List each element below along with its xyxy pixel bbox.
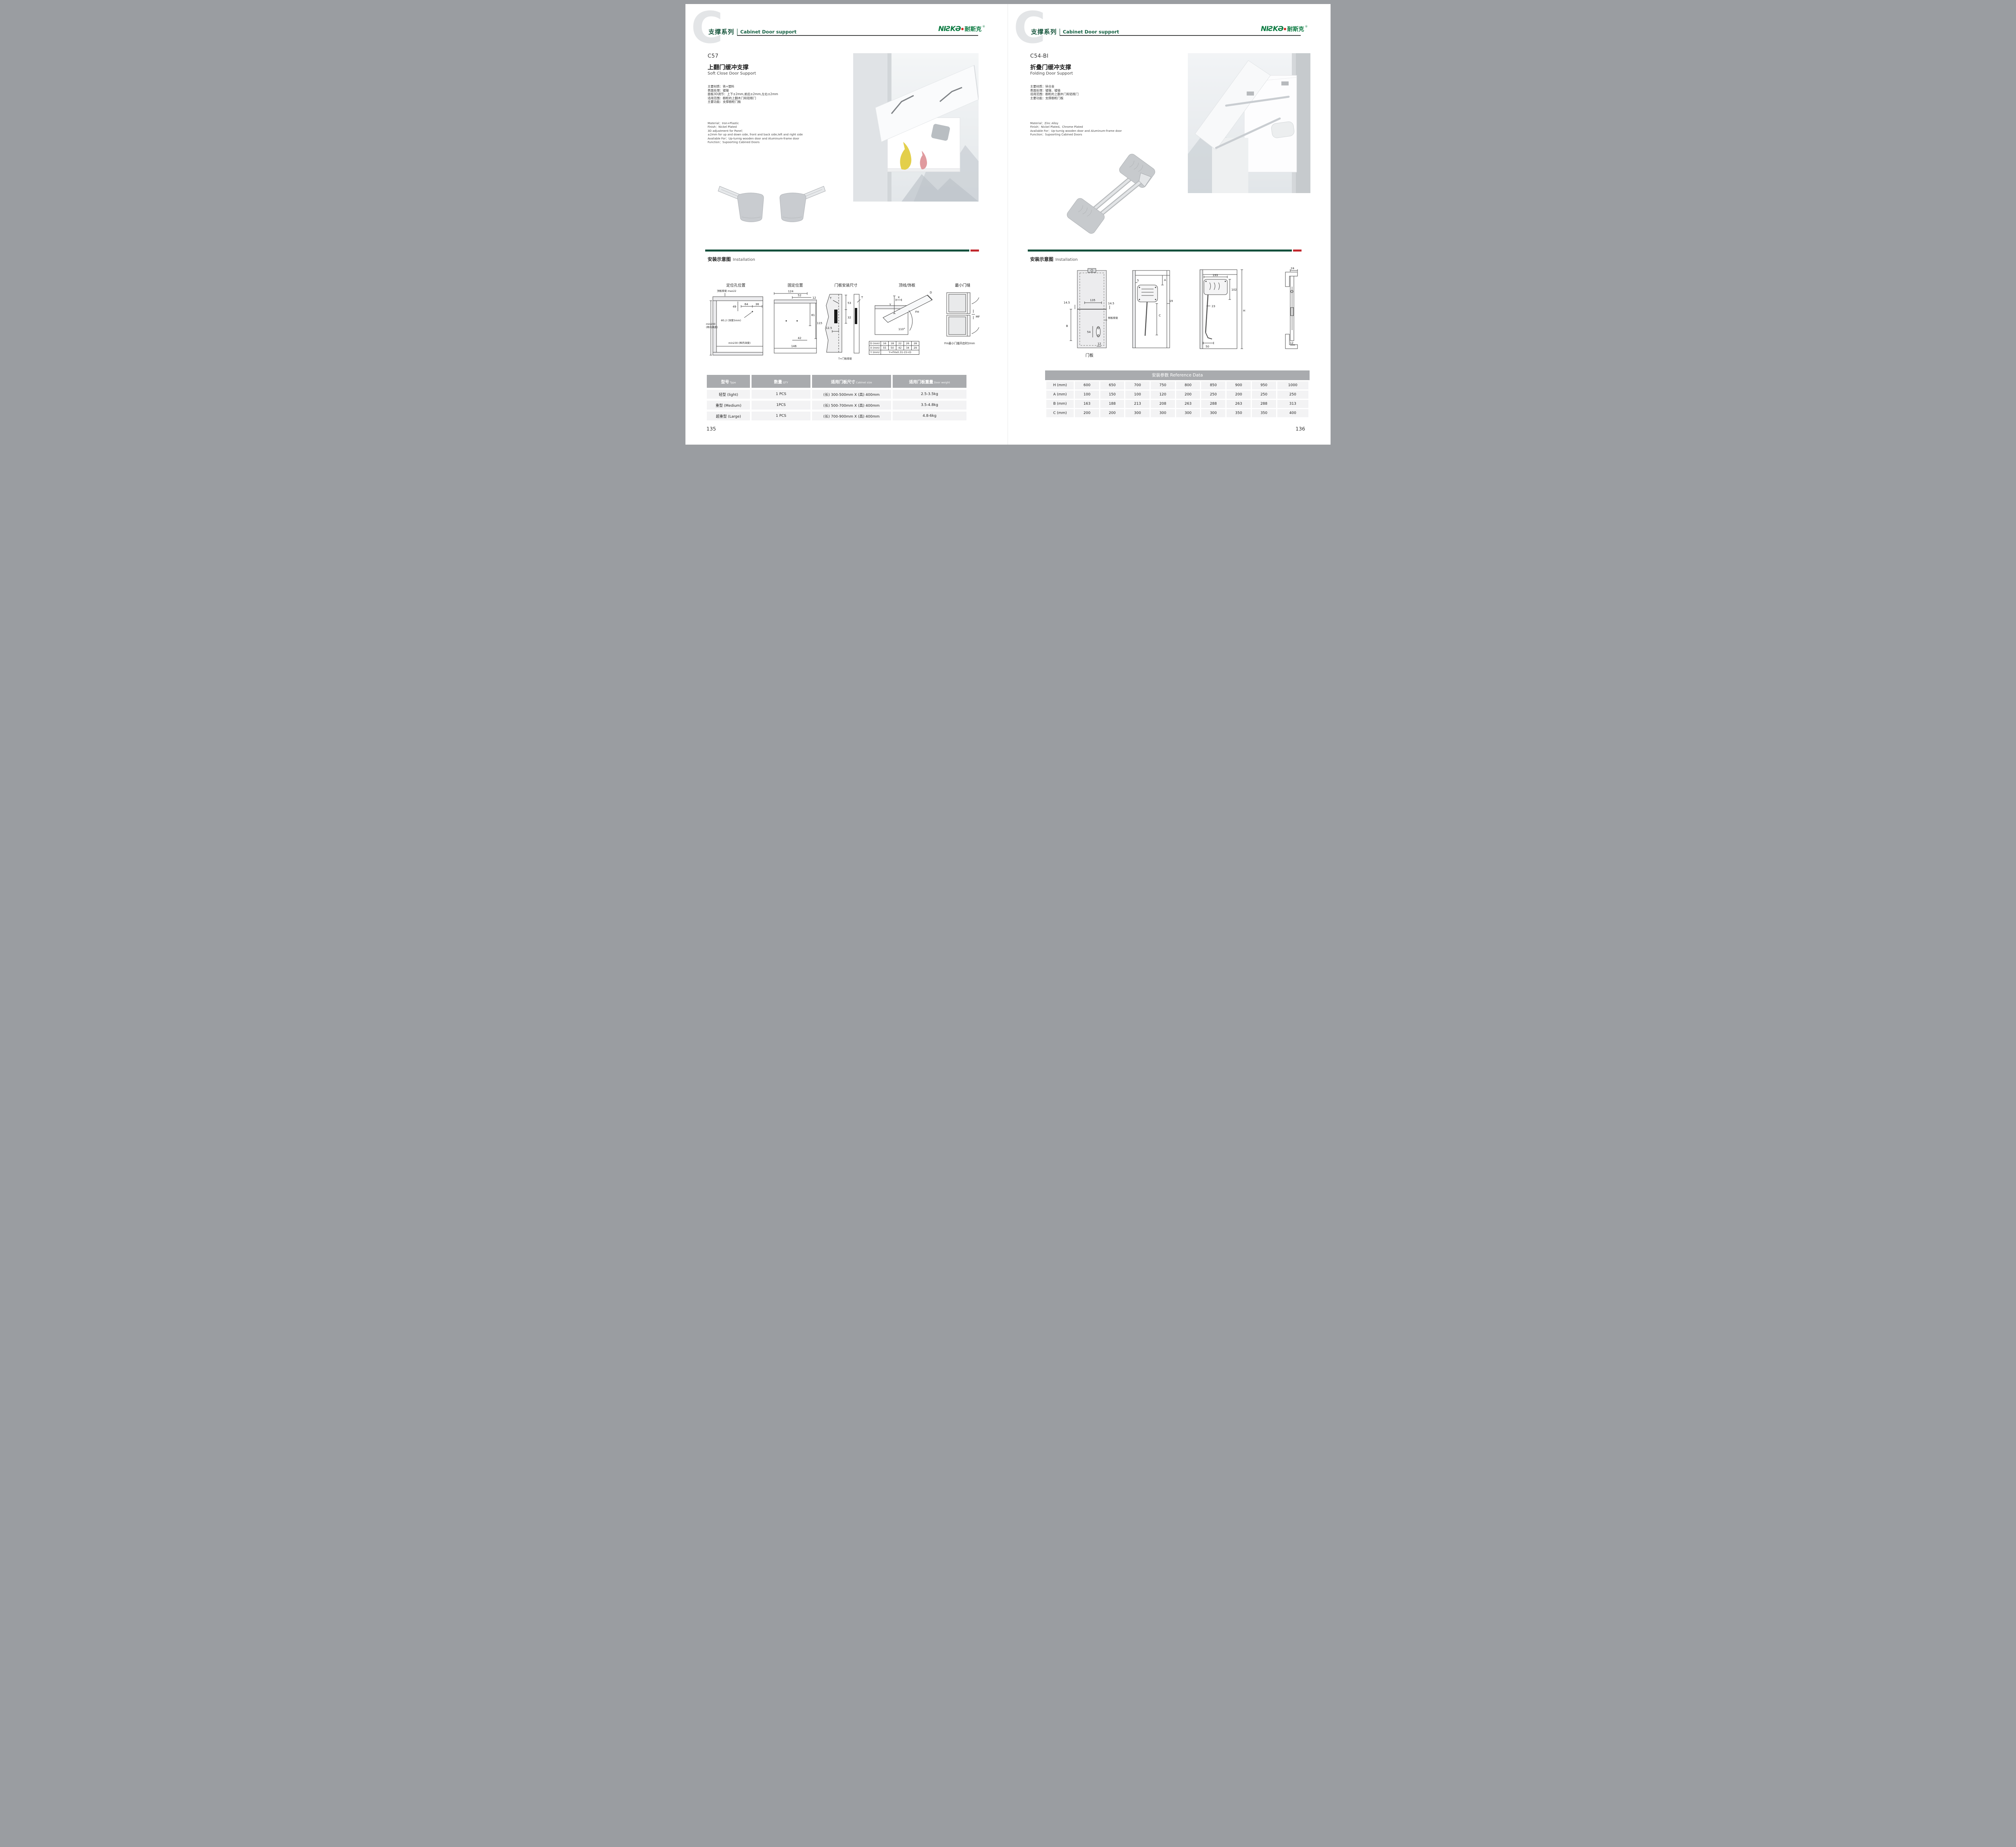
header-rule <box>1060 35 1301 36</box>
brand-logo-dot-icon <box>1284 28 1286 30</box>
table-cell: 700 <box>1125 381 1150 389</box>
table-cell: 163 <box>1075 400 1099 408</box>
table-cell: 150 <box>1100 391 1125 399</box>
product-title-cn: 上翻门缓冲支撑 <box>708 63 749 71</box>
table-cell: 18 <box>889 341 896 346</box>
dim-36: 36 <box>756 303 759 306</box>
spec-line: Material：Zinc Alloy <box>1030 122 1122 125</box>
brand-logo-text: NIƧKƏ <box>1261 25 1283 33</box>
dim-t-note: T=门板厚度 <box>838 357 852 360</box>
dim-23: 23 <box>1212 305 1215 308</box>
table-cell: 400 <box>1277 409 1309 417</box>
diagram-door-panel-drawing: 135 14.5 14.5 B 54 12 侧板厚度 门板 <box>1063 267 1122 359</box>
table-cell: 200 <box>1075 409 1099 417</box>
table-cell: 100 <box>1075 391 1099 399</box>
series-header: 支撑系列 Cabinet Door support <box>1031 27 1119 36</box>
series-title-cn: 支撑系列 <box>1031 27 1057 36</box>
table-cell: 34 <box>904 346 912 350</box>
dim-81: 81 <box>811 314 815 317</box>
table-cell: 263 <box>1227 400 1251 408</box>
fm-gap-note: Fm最小门缝开启时2mm <box>932 341 987 345</box>
spec-line: Function：Supoorting Cabined Doors <box>1030 133 1122 137</box>
table-cell: (长) 700-900mm X (高) 400mm <box>812 412 891 420</box>
spec-line: 主要材质：铁+塑料 <box>708 85 778 89</box>
page-number: 136 <box>1288 426 1305 432</box>
diagram-label: 最小门缝 <box>943 282 982 288</box>
hardware-photo <box>716 180 827 229</box>
table-cell: 2.5-3.5kg <box>893 390 966 399</box>
page-135: C 支撑系列 Cabinet Door support NIƧKƏ 耐斯克 ® … <box>685 4 1008 445</box>
table-cell: 250 <box>1201 391 1225 399</box>
table-cell: 重型 (Medium) <box>707 401 750 410</box>
table-cell: (长) 500-700mm X (高) 400mm <box>812 401 891 410</box>
product-code: C54-BI <box>1030 53 1049 59</box>
divider-green-bar <box>705 250 969 252</box>
table-header: 适用门板尺寸Cabinet size <box>812 375 891 388</box>
table-row: C (mm) 200 200 300 300 300 300 350 350 4… <box>1046 409 1308 417</box>
dim-x: X <box>898 296 900 299</box>
diagram-door-panel: 135 14.5 14.5 B 54 12 侧板厚度 门板 <box>1063 267 1122 361</box>
dim-min-height-1: min200 <box>706 323 716 326</box>
dim-min-depth: min230 (柜内深度) <box>728 341 750 345</box>
dim-49: 49 <box>733 305 736 308</box>
dim-mf: MF <box>976 315 980 318</box>
header-rule <box>737 35 978 36</box>
dim-min-height-2: (柜内高度) <box>706 326 718 329</box>
series-header: 支撑系列 Cabinet Door support <box>708 27 796 36</box>
spec-line: Finish：Nickel Plated、Chrome Plated <box>1030 125 1122 129</box>
table-cell: 16 <box>881 341 889 346</box>
table-cell: 850 <box>1201 381 1225 389</box>
dim-14-5-left: 14.5 <box>1064 301 1070 304</box>
table-cell: 100 <box>1125 391 1150 399</box>
dim-102: 102 <box>1231 288 1237 291</box>
spec-line: Finish：Nickel Plated <box>708 125 803 129</box>
diagram-profile-drawing: 24 12 <box>1279 267 1304 354</box>
dim-y: Y <box>889 303 891 306</box>
table-row: B (mm) 163 188 213 208 263 288 263 288 3… <box>1046 400 1308 408</box>
dim-42: 42 <box>798 337 802 340</box>
section-divider <box>705 250 979 252</box>
series-divider <box>1060 29 1060 35</box>
dim-52: 52 <box>798 294 802 297</box>
brand-logo-dot-icon <box>961 28 964 30</box>
spec-line: 表面处理：镀镍 <box>708 89 778 93</box>
table-cell: 300 <box>1151 409 1175 417</box>
diagram-cabinet-arm: 193 102 23 50 H <box>1196 267 1246 356</box>
product-title-en: Soft Close Door Support <box>708 71 756 76</box>
installation-heading-cn: 安装示意图 <box>708 256 731 262</box>
table-cell: 213 <box>1125 400 1150 408</box>
reference-table: 安装参数 Reference Data H (mm) 600 650 700 7… <box>1045 370 1310 418</box>
diagram-positioning-holes: 定位孔位置 顶板厚度 max22 49 64 36 Φ5.2 (深度5mm) <box>706 282 766 361</box>
table-cell: 4.8-6kg <box>893 412 966 420</box>
table-cell: 263 <box>1176 400 1200 408</box>
hardware-illustration <box>1058 152 1160 237</box>
table-cell: H (mm) <box>1046 381 1074 389</box>
divider-red-accent <box>971 250 979 252</box>
diagram-profile: 24 12 <box>1279 267 1304 356</box>
spec-line: Available For：Up-turnig wooden door and … <box>708 137 803 141</box>
dim-124: 124 <box>788 290 793 293</box>
table-cell: 188 <box>1100 400 1125 408</box>
specs-en: Material：Iron+Plastic Finish：Nickel Plat… <box>708 122 803 144</box>
diagram-door-mounting-drawing: T 53 32 12.5 T T=门板厚度 <box>822 289 870 361</box>
table-cell: 1 PCS <box>752 390 810 399</box>
reference-table-title: 安装参数 Reference Data <box>1045 370 1310 380</box>
installation-heading: 安装示意图Installation <box>1030 255 1078 262</box>
product-code: C57 <box>708 53 719 59</box>
registered-mark: ® <box>982 25 985 28</box>
dim-146: 146 <box>791 345 797 348</box>
dim-32: 32 <box>848 316 851 319</box>
table-cell: 600 <box>1075 381 1099 389</box>
series-title-en: Cabinet Door support <box>1063 29 1119 35</box>
spec-line: 表面处理：镀镍、镀铬 <box>1030 89 1079 93</box>
table-cell: 50 <box>889 346 896 350</box>
table-cell: 350 <box>1252 409 1276 417</box>
table-cell: 250 <box>1252 391 1276 399</box>
dim-12-5: 12.5 <box>826 327 832 330</box>
table-cell: D (mm) <box>869 341 881 346</box>
cabinet-photo <box>853 53 979 202</box>
dim-hole: Φ5.2 (深度5mm) <box>721 319 741 322</box>
table-row: Y (mm) Y=FHx0.31-15+D <box>869 350 919 355</box>
series-title-cn: 支撑系列 <box>708 27 734 36</box>
brand-logo-text: NIƧKƏ <box>938 25 960 33</box>
brand-logo: NIƧKƏ 耐斯克 ® <box>938 25 985 33</box>
specs-cn: 主要材质：锌合金 表面处理：镀镍、镀铬 适用范围：橱柜的上翻木门和铝框门 主要功… <box>1030 85 1079 100</box>
hardware-photo <box>1058 152 1160 237</box>
dim-t-right: T <box>861 296 863 299</box>
table-row: H (mm) 600 650 700 750 800 850 900 950 1… <box>1046 381 1308 389</box>
table-cell: A (mm) <box>1046 391 1074 399</box>
table-cell: 3.5-4.8kg <box>893 401 966 410</box>
diagram-label: 固定位置 <box>768 282 823 288</box>
table-header: 数量QTY <box>752 375 810 388</box>
diagram-cabinet-arm-drawing: 193 102 23 50 H <box>1196 267 1246 354</box>
dim-64: 64 <box>745 303 748 306</box>
dim-19: 19 <box>1169 300 1173 303</box>
dim-193: 193 <box>1212 274 1218 277</box>
table-cell: 350 <box>1227 409 1251 417</box>
brand-logo-cn: 耐斯克 <box>1287 25 1304 33</box>
dim-12: 12 <box>1098 342 1101 345</box>
spec-line: 3D adjustment for Panel： <box>708 129 803 133</box>
diagram-fixing-position-drawing: 124 52 12 81 115 42 146 <box>768 289 823 359</box>
installation-heading-en: Installation <box>733 258 755 262</box>
dim-c: C <box>1159 314 1161 317</box>
table-cell: 200 <box>1227 391 1251 399</box>
spec-line: Function：Supoorting Cabined Doors <box>708 141 803 144</box>
dim-54: 54 <box>1087 331 1091 334</box>
table-row: X (mm) 55 50 42 34 29 <box>869 346 919 350</box>
table-cell: 55 <box>881 346 889 350</box>
table-row: D (mm) 16 18 22 26 28 <box>869 341 919 346</box>
dim-53: 53 <box>848 302 851 305</box>
spec-line: 适用范围：橱柜的上翻木门和铝框门 <box>1030 92 1079 96</box>
diagram-cabinet-mechanism-drawing: 5 A C 19 <box>1127 267 1175 354</box>
table-cell: 29 <box>912 346 919 350</box>
table-cell: 1 PCS <box>752 412 810 420</box>
section-divider <box>1028 250 1302 252</box>
diagram-min-gap-drawing: MF <box>943 289 982 341</box>
dim-top-thickness: 顶板厚度 max22 <box>717 289 736 293</box>
cabinet-photo <box>1188 53 1310 193</box>
product-title-cn: 折叠门缓冲支撑 <box>1030 63 1071 71</box>
table-cell: 800 <box>1176 381 1200 389</box>
table-cell: 1000 <box>1277 381 1309 389</box>
reference-table-grid: H (mm) 600 650 700 750 800 850 900 950 1… <box>1045 380 1310 418</box>
brand-logo-cn: 耐斯克 <box>964 25 981 33</box>
spec-line: ±2mm for up and down side, front and bac… <box>708 133 803 137</box>
series-divider <box>737 29 737 35</box>
dim-angle: 110° <box>898 328 905 331</box>
table-cell: Y (mm) <box>869 350 881 355</box>
registered-mark: ® <box>1305 25 1308 28</box>
spec-line: 面板3D调节：上下±2mm,前后±2mm,左右±2mm <box>708 92 778 96</box>
dim-135: 135 <box>1090 299 1095 302</box>
spec-line: 主要功能：支撑橱柜门板 <box>708 100 778 104</box>
brand-logo: NIƧKƏ 耐斯克 ® <box>1261 25 1308 33</box>
table-cell: 650 <box>1100 381 1125 389</box>
table-cell: 300 <box>1125 409 1150 417</box>
installation-heading-en: Installation <box>1056 258 1078 262</box>
table-cell: 22 <box>896 341 904 346</box>
cabinet-photo-illustration <box>1188 53 1310 193</box>
diagram-label: 顶线/饰板 <box>872 282 942 288</box>
dim-50: 50 <box>1206 345 1209 348</box>
diagram-fixing-position: 固定位置 124 52 12 81 115 42 <box>768 282 823 361</box>
dxy-table: D (mm) 16 18 22 26 28 X (mm) 55 50 42 34… <box>869 341 919 355</box>
series-title-en: Cabinet Door support <box>740 29 796 35</box>
table-cell: 900 <box>1227 381 1251 389</box>
table-header: 适用门板重量Door weight <box>893 375 966 388</box>
table-row: 超重型 (Large) 1 PCS (长) 700-900mm X (高) 40… <box>707 412 966 420</box>
installation-heading: 安装示意图Installation <box>708 255 755 262</box>
table-cell: 250 <box>1277 391 1309 399</box>
table-cell: 288 <box>1201 400 1225 408</box>
spec-line: 主要材质：锌合金 <box>1030 85 1079 89</box>
diagram-door-mounting-size: 门板安装尺寸 T 53 32 12.5 T T=门板厚度 <box>822 282 870 363</box>
installation-heading-cn: 安装示意图 <box>1030 256 1054 262</box>
table-cell: 300 <box>1176 409 1200 417</box>
dim-a: A <box>1164 279 1166 282</box>
spec-line: Material：Iron+Plastic <box>708 122 803 125</box>
table-cell: 42 <box>896 346 904 350</box>
dim-b: B <box>1066 324 1068 328</box>
table-cell: 300 <box>1201 409 1225 417</box>
diagram-crown-trim-drawing: Y X D FH 110° <box>872 289 942 339</box>
divider-red-accent <box>1293 250 1302 252</box>
table-cell: C (mm) <box>1046 409 1074 417</box>
table-cell: 200 <box>1176 391 1200 399</box>
diagram-min-gap: 最小门缝 MF <box>943 282 982 343</box>
dim-5: 5 <box>1137 279 1139 282</box>
dim-24: 24 <box>1291 267 1294 270</box>
cabinet-photo-illustration <box>853 53 979 202</box>
page-136: C 支撑系列 Cabinet Door support NIƧKƏ 耐斯克 ® … <box>1008 4 1331 445</box>
table-cell: X (mm) <box>869 346 881 350</box>
table-cell: 200 <box>1100 409 1125 417</box>
spec-line: 适用范围：橱柜的上翻木门和铝框门 <box>708 96 778 100</box>
hardware-illustration <box>716 180 827 229</box>
table-cell: 26 <box>904 341 912 346</box>
dim-h: H <box>1243 309 1245 312</box>
specs-en: Material：Zinc Alloy Finish：Nickel Plated… <box>1030 122 1122 137</box>
dim-fh: FH <box>915 310 919 314</box>
table-cell: 313 <box>1277 400 1309 408</box>
diagram-positioning-holes-drawing: 顶板厚度 max22 49 64 36 Φ5.2 (深度5mm) min200 … <box>706 289 766 359</box>
dim-d: D <box>930 291 932 294</box>
table-cell: 750 <box>1151 381 1175 389</box>
table-header-row: 型号Type 数量QTY 适用门板尺寸Cabinet size 适用门板重量Do… <box>707 375 966 388</box>
table-cell: B (mm) <box>1046 400 1074 408</box>
diagram-label: 定位孔位置 <box>706 282 766 288</box>
table-row: 重型 (Medium) 1PCS (长) 500-700mm X (高) 400… <box>707 401 966 410</box>
diagram-crown-trim: 顶线/饰板 Y X D FH 110° <box>872 282 942 341</box>
divider-green-bar <box>1028 250 1292 252</box>
table-cell: 28 <box>912 341 919 346</box>
table-cell: 288 <box>1252 400 1276 408</box>
page-number: 135 <box>706 426 716 432</box>
dim-t-top: T <box>829 297 832 300</box>
specs-cn: 主要材质：铁+塑料 表面处理：镀镍 面板3D调节：上下±2mm,前后±2mm,左… <box>708 85 778 104</box>
dim-side-thickness: 侧板厚度 <box>1108 316 1118 320</box>
table-cell: 轻型 (light) <box>707 390 750 399</box>
dim-12: 12 <box>1290 341 1293 345</box>
table-cell: 208 <box>1151 400 1175 408</box>
table-cell: Y=FHx0.31-15+D <box>881 350 919 355</box>
diagram-label: 门板安装尺寸 <box>822 282 870 288</box>
table-cell: 950 <box>1252 381 1276 389</box>
catalog-spread: C 支撑系列 Cabinet Door support NIƧKƏ 耐斯克 ® … <box>685 4 1331 445</box>
spec-table: 型号Type 数量QTY 适用门板尺寸Cabinet size 适用门板重量Do… <box>705 373 968 422</box>
table-cell: 120 <box>1151 391 1175 399</box>
table-cell: 1PCS <box>752 401 810 410</box>
dim-12: 12 <box>812 296 816 300</box>
diagram-cabinet-mechanism: 5 A C 19 <box>1127 267 1175 356</box>
table-header: 型号Type <box>707 375 750 388</box>
diagram-caption: 门板 <box>1085 353 1093 358</box>
spec-line: 主要功能：支撑橱柜门板 <box>1030 96 1079 100</box>
dim-14-5-right: 14.5 <box>1108 302 1114 305</box>
product-title-en: Folding Door Support <box>1030 71 1073 76</box>
table-cell: (长) 300-500mm X (高) 400mm <box>812 390 891 399</box>
table-cell: 超重型 (Large) <box>707 412 750 420</box>
table-row: A (mm) 100 150 100 120 200 250 200 250 2… <box>1046 391 1308 399</box>
table-row: 轻型 (light) 1 PCS (长) 300-500mm X (高) 400… <box>707 390 966 399</box>
spec-line: Available For：Up-turnig wooden door and … <box>1030 129 1122 133</box>
